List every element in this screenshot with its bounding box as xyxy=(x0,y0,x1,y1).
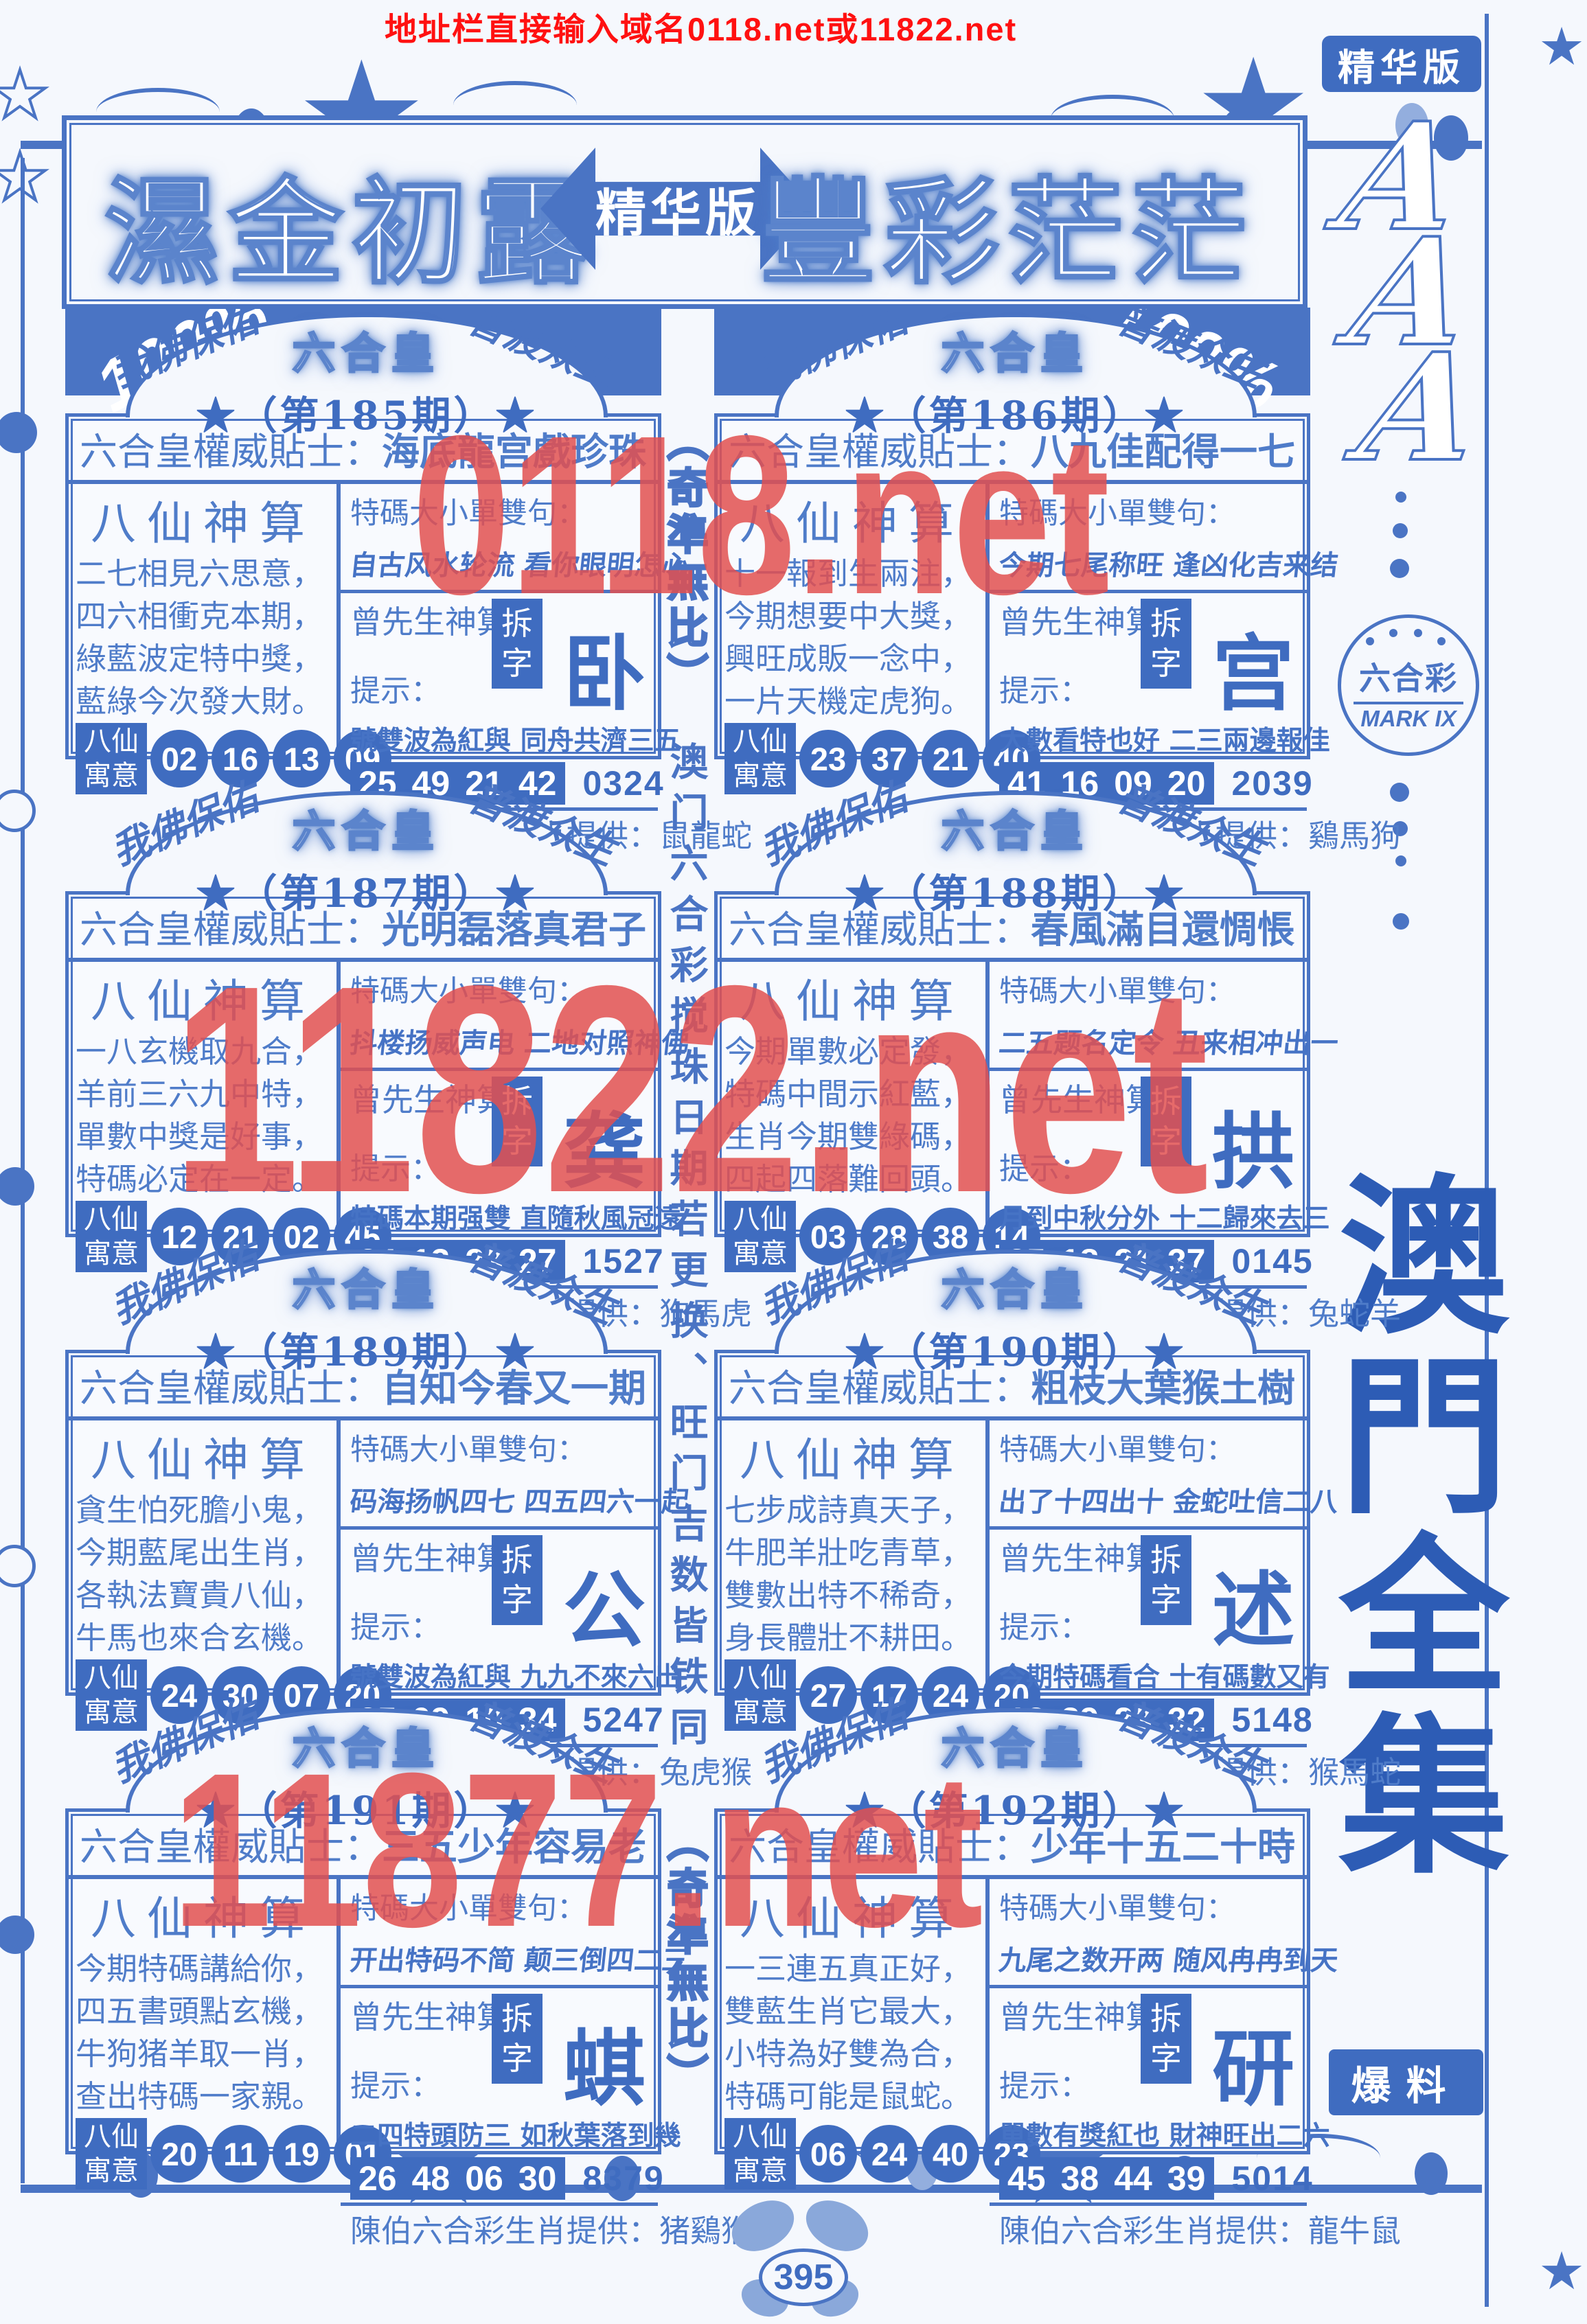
poem-line: 查出特碼一家親。 xyxy=(76,2075,331,2118)
panel-box: 六合皇權威貼士： 自知今春又一期 八仙神算 貪生怕死膽小鬼， 今期藍尾出生肖， … xyxy=(65,1350,661,1696)
yuyi-number: 20 xyxy=(150,2125,208,2183)
zodiac-label: 陳伯六合彩生肖提供： xyxy=(999,2206,1308,2251)
split-character-badge: 拆字 xyxy=(492,1077,543,1166)
split-character-badge: 拆字 xyxy=(1141,1535,1191,1625)
poem-line: 身長體壯不耕田。 xyxy=(724,1617,980,1659)
dot-decoration xyxy=(0,412,37,453)
phrase-text: 抖楼扬威声电 二地对照神佛 xyxy=(348,1021,657,1061)
poem-line: 雙藍生肖它最大， xyxy=(724,1990,980,2033)
phrase-text: 二五题名定令 丑来相冲出一 xyxy=(997,1021,1306,1061)
logo-dot xyxy=(1414,629,1422,637)
poem-column: 八仙神算 十一報到生兩注， 今期想要中大獎， 興旺成販一念中， 一片天機定虎狗。… xyxy=(718,484,990,756)
split-character: 公 xyxy=(563,1543,646,1663)
poem-column: 八仙神算 一八玄機取九合， 羊前三六九中特， 單數中獎是好事， 特碼必定在一定。… xyxy=(69,962,341,1234)
prediction-panel-189: 我佛保佑 普渡众生 六合皇 ★（第189期）★ 六合皇權威貼士： 自知今春又一期… xyxy=(65,1240,661,1696)
yuyi-badge-top: 八仙 xyxy=(84,1661,139,1695)
panel-box: 六合皇權威貼士： 三五少年容易老 八仙神算 今期特碼講給你， 四五書頭點玄機， … xyxy=(65,1808,661,2154)
split-character: 述 xyxy=(1212,1543,1294,1663)
poem-line: 興旺成販一念中， xyxy=(724,638,980,680)
panel-box: 六合皇權威貼士： 粗枝大葉猴土樹 八仙神算 七步成詩真天子， 牛肥羊壯吃青草， … xyxy=(714,1350,1310,1696)
issue-label: ★（第188期）★ xyxy=(779,862,1253,919)
chai-label: 拆字 xyxy=(492,604,543,683)
top-domain-banner: 地址栏直接输入域名0118.net或11822.net xyxy=(385,3,1017,50)
poem-line: 七步成詩真天子， xyxy=(724,1489,980,1532)
poem-line: 小特為好雙為合， xyxy=(724,2033,980,2075)
dot-decoration xyxy=(1395,855,1406,866)
dot-decoration xyxy=(1393,523,1408,538)
numbers-bar: 45 38 44 39 xyxy=(999,2157,1214,2200)
yuyi-number: 11 xyxy=(212,2125,269,2183)
issue-label: ★（第187期）★ xyxy=(130,862,604,919)
issue-label: ★（第186期）★ xyxy=(779,384,1253,441)
split-character-badge: 拆字 xyxy=(1141,1077,1191,1166)
phrase-label: 特碼大小單雙句： xyxy=(999,490,1304,532)
yuyi-badge-top: 八仙 xyxy=(84,1202,139,1236)
poem-line: 貪生怕死膽小鬼， xyxy=(76,1489,331,1532)
split-character-badge: 拆字 xyxy=(1141,599,1191,689)
dot-decoration xyxy=(1390,559,1409,578)
yuyi-number: 02 xyxy=(150,730,208,787)
yuyi-badge-top: 八仙 xyxy=(733,1661,788,1695)
master-section: 曾先生神算： 拆字 蜞 提示： 二四特頭防三 如秋葉落到幾 26 48 06 3… xyxy=(341,1988,658,2206)
poem-line: 羊前三六九中特， xyxy=(76,1073,331,1116)
pick-number: 44 xyxy=(1114,2159,1152,2198)
panel-arc-header: 我佛保佑 普渡众生 六合皇 ★（第186期）★ xyxy=(714,303,1310,413)
chai-label: 拆字 xyxy=(492,1541,543,1620)
dot-decoration xyxy=(0,1545,36,1587)
chai-label: 拆字 xyxy=(1141,1541,1191,1620)
logo-dot xyxy=(1366,637,1374,645)
poem-column: 八仙神算 貪生怕死膽小鬼， 今期藍尾出生肖， 各執法寶貴八仙， 牛馬也來合玄機。… xyxy=(69,1420,341,1692)
star-icon: ★ xyxy=(1538,21,1585,73)
center-column-middle: 澳门六合彩搅珠日期若更换、旺门吉数皆铁同 xyxy=(657,714,714,1785)
poem-line: 雙數出特不稀奇， xyxy=(724,1574,980,1617)
center-column-top: （奇準無比） xyxy=(657,412,714,707)
phrase-label: 特碼大小單雙句： xyxy=(999,1426,1304,1469)
prediction-panel-185: 我佛保佑 普渡众生 六合皇 ★（第185期）★ 六合皇權威貼士： 海底龍宫戲珍珠… xyxy=(65,303,661,759)
split-character: 宫 xyxy=(1212,607,1294,726)
poem-title: 八仙神算 xyxy=(76,1882,331,1948)
yuyi-badge-bottom: 寓意 xyxy=(733,2154,788,2188)
poem-line: 今期單數必定發， xyxy=(724,1031,980,1073)
logo-dot xyxy=(1437,637,1446,645)
phrase-label: 特碼大小單雙句： xyxy=(999,967,1304,1010)
poem-line: 生肖今期雙綠碼， xyxy=(724,1116,980,1158)
phrase-section: 特碼大小單雙句： 今期七尾称旺 逢凶化吉来结 xyxy=(990,484,1307,593)
zodiac-animals: 猴馬蛇 xyxy=(1308,1747,1401,1792)
poem-line: 牛馬也來合玄機。 xyxy=(76,1617,331,1659)
panel-arc-header: 我佛保佑 普渡众生 六合皇 ★（第187期）★ xyxy=(65,781,661,891)
poem-line: 十一報到生兩注， xyxy=(724,553,980,595)
poem-column: 八仙神算 今期特碼講給你， 四五書頭點玄機， 牛狗猪羊取一肖， 查出特碼一家親。… xyxy=(69,1879,341,2151)
prediction-panel-186: 我佛保佑 普渡众生 六合皇 ★（第186期）★ 六合皇權威貼士： 八九佳配得一七… xyxy=(714,303,1310,759)
pick-number: 26 xyxy=(358,2159,397,2198)
chai-label: 拆字 xyxy=(1141,1082,1191,1161)
dot-decoration xyxy=(1415,2152,1448,2195)
chai-label: 拆字 xyxy=(492,1999,543,2078)
yuyi-badge: 八仙 寓意 xyxy=(76,2118,147,2189)
poem-line: 今期想要中大獎， xyxy=(724,595,980,638)
star-icon: ★ xyxy=(1538,2245,1585,2297)
numbers-row: 26 48 06 30 8379 xyxy=(350,2157,655,2200)
yuyi-number: 24 xyxy=(860,2125,918,2183)
prediction-panel-187: 我佛保佑 普渡众生 六合皇 ★（第187期）★ 六合皇權威貼士： 光明磊落真君子… xyxy=(65,781,661,1237)
panel-box: 六合皇權威貼士： 海底龍宫戲珍珠 八仙神算 二七相見六思意， 四六相衝克本期， … xyxy=(65,413,661,759)
pick-number: 38 xyxy=(1061,2159,1099,2198)
star-icon: ★ xyxy=(0,62,49,128)
yuyi-badge-top: 八仙 xyxy=(84,724,139,759)
phrase-text: 今期七尾称旺 逢凶化吉来结 xyxy=(997,543,1306,583)
dot-decoration xyxy=(0,1167,34,1206)
panel-arc-header: 我佛保佑 普渡众生 六合皇 ★（第192期）★ xyxy=(714,1699,1310,1808)
four-digit-code: 8379 xyxy=(583,2159,665,2198)
phrase-text: 自古风水轮流 看你眼明怎心 xyxy=(348,543,657,583)
panel-box: 六合皇權威貼士： 春風滿目還惆悵 八仙神算 今期單數必定發， 特碼中間示紅藍， … xyxy=(714,891,1310,1237)
dot-decoration xyxy=(1390,783,1409,802)
panel-arc-header: 我佛保佑 普渡众生 六合皇 ★（第190期）★ xyxy=(714,1240,1310,1350)
poem-column: 八仙神算 一三連五真正好， 雙藍生肖它最大， 小特為好雙為合， 特碼可能是鼠蛇。… xyxy=(718,1879,990,2151)
yuyi-number: 23 xyxy=(799,730,857,787)
split-character: 龚 xyxy=(563,1085,646,1204)
logo-dot xyxy=(1389,629,1397,637)
pick-number: 06 xyxy=(465,2159,503,2198)
phrase-label: 特碼大小單雙句： xyxy=(999,1885,1304,1927)
phrase-label: 特碼大小單雙句： xyxy=(350,490,655,532)
yuyi-number: 06 xyxy=(799,2125,857,2183)
poem-line: 牛肥羊壯吃青草， xyxy=(724,1532,980,1574)
poem-title: 八仙神算 xyxy=(724,1882,980,1948)
four-digit-code: 5014 xyxy=(1232,2159,1314,2198)
poem-title: 八仙神算 xyxy=(76,1423,331,1489)
yuyi-number: 13 xyxy=(273,730,330,787)
phrase-section: 特碼大小單雙句： 码海扬帆四七 四五四六一起 xyxy=(341,1420,658,1530)
yuyi-number: 21 xyxy=(922,730,979,787)
panel-box: 六合皇權威貼士： 八九佳配得一七 八仙神算 十一報到生兩注， 今期想要中大獎， … xyxy=(714,413,1310,759)
poem-line: 今期特碼講給你， xyxy=(76,1948,331,1990)
poem-title: 八仙神算 xyxy=(76,487,331,553)
center-column-bottom: （奇準無比） xyxy=(657,1813,714,2108)
yuyi-number-row: 八仙 寓意 20 11 19 01 xyxy=(76,2118,331,2189)
split-character: 拱 xyxy=(1212,1085,1294,1204)
split-character-badge: 拆字 xyxy=(492,1994,543,2084)
poem-column: 八仙神算 七步成詩真天子， 牛肥羊壯吃青草， 雙數出特不稀奇， 身長體壯不耕田。… xyxy=(718,1420,990,1692)
poem-line: 牛狗猪羊取一肖， xyxy=(76,2033,331,2075)
poem-title: 八仙神算 xyxy=(76,965,331,1031)
phrase-text: 出了十四出十 金蛇吐信二八 xyxy=(997,1480,1306,1519)
prediction-panel-191: 我佛保佑 普渡众生 六合皇 ★（第191期）★ 六合皇權威貼士： 三五少年容易老… xyxy=(65,1699,661,2154)
butterfly-decoration: 395 xyxy=(724,2200,876,2324)
banner-left-title: 濕金初露 xyxy=(104,139,599,306)
zodiac-section: 陳伯六合彩生肖提供： 猪鷄猴 xyxy=(341,2206,658,2251)
zodiac-section: 陳伯六合彩生肖提供： 龍牛鼠 xyxy=(990,2206,1307,2251)
dot-decoration xyxy=(1393,913,1409,930)
prediction-panel-192: 我佛保佑 普渡众生 六合皇 ★（第192期）★ 六合皇權威貼士： 少年十五二十時… xyxy=(714,1699,1310,2154)
pick-number: 45 xyxy=(1007,2159,1046,2198)
poem-line: 藍綠今次發大財。 xyxy=(76,680,331,723)
poem-line: 今期藍尾出生肖， xyxy=(76,1532,331,1574)
yuyi-badge-top: 八仙 xyxy=(84,2119,139,2154)
poem-line: 特碼可能是鼠蛇。 xyxy=(724,2075,980,2118)
poem-line: 單數中獎是好事， xyxy=(76,1116,331,1158)
poem-title: 八仙神算 xyxy=(724,965,980,1031)
logo-mark: MARK IX xyxy=(1354,702,1463,732)
poem-line: 四六相衝克本期， xyxy=(76,595,331,638)
yuyi-number: 19 xyxy=(273,2125,330,2183)
prediction-panel-188: 我佛保佑 普渡众生 六合皇 ★（第188期）★ 六合皇權威貼士： 春風滿目還惆悵… xyxy=(714,781,1310,1237)
panel-arc-header: 我佛保佑 普渡众生 六合皇 ★（第188期）★ xyxy=(714,781,1310,891)
pick-number: 48 xyxy=(412,2159,450,2198)
phrase-label: 特碼大小單雙句： xyxy=(350,1885,655,1927)
chai-label: 拆字 xyxy=(1141,604,1191,683)
title-banner: 濕金初露 精华版 豐彩茫茫 xyxy=(62,115,1308,309)
sidebar-bottom-badge: 爆料 xyxy=(1329,2049,1483,2115)
dot-decoration xyxy=(0,790,36,832)
numbers-row: 45 38 44 39 5014 xyxy=(999,2157,1304,2200)
star-icon: ★ xyxy=(0,144,49,210)
poem-line: 特碼必定在一定。 xyxy=(76,1158,331,1201)
phrase-text: 开出特码不简 颠三倒四二三 xyxy=(348,1938,657,1978)
split-character: 研 xyxy=(1212,2002,1294,2121)
zodiac-animals: 龍牛鼠 xyxy=(1308,2206,1401,2251)
phrase-label: 特碼大小單雙句： xyxy=(350,1426,655,1469)
poem-column: 八仙神算 二七相見六思意， 四六相衝克本期， 綠藍波定特中獎， 藍綠今次發大財。… xyxy=(69,484,341,756)
issue-label: ★（第185期）★ xyxy=(130,384,604,441)
phrase-section: 特碼大小單雙句： 抖楼扬威声电 二地对照神佛 xyxy=(341,962,658,1071)
phrase-section: 特碼大小單雙句： 出了十四出十 金蛇吐信二八 xyxy=(990,1420,1307,1530)
panel-box: 六合皇權威貼士： 光明磊落真君子 八仙神算 一八玄機取九合， 羊前三六九中特， … xyxy=(65,891,661,1237)
panel-arc-header: 我佛保佑 普渡众生 六合皇 ★（第185期）★ xyxy=(65,303,661,413)
issue-label: ★（第191期）★ xyxy=(130,1780,604,1836)
split-character-badge: 拆字 xyxy=(492,1535,543,1625)
prediction-panel-190: 我佛保佑 普渡众生 六合皇 ★（第190期）★ 六合皇權威貼士： 粗枝大葉猴土樹… xyxy=(714,1240,1310,1696)
poem-line: 四起四落難回頭。 xyxy=(724,1158,980,1201)
yuyi-badge-top: 八仙 xyxy=(733,724,788,759)
panel-arc-header: 我佛保佑 普渡众生 六合皇 ★（第189期）★ xyxy=(65,1240,661,1350)
poem-line: 綠藍波定特中獎， xyxy=(76,638,331,680)
yuyi-badge-top: 八仙 xyxy=(733,2119,788,2154)
poem-title: 八仙神算 xyxy=(724,487,980,553)
panel-arc-header: 我佛保佑 普渡众生 六合皇 ★（第191期）★ xyxy=(65,1699,661,1808)
split-character: 蜞 xyxy=(563,2002,646,2121)
numbers-bar: 26 48 06 30 xyxy=(350,2157,565,2200)
phrase-section: 特碼大小單雙句： 二五题名定令 丑来相冲出一 xyxy=(990,962,1307,1071)
edition-label: 精华版 xyxy=(595,172,760,246)
panel-box: 六合皇權威貼士： 少年十五二十時 八仙神算 一三連五真正好， 雙藍生肖它最大， … xyxy=(714,1808,1310,2154)
poem-line: 二七相見六思意， xyxy=(76,553,331,595)
poem-line: 一八玄機取九合， xyxy=(76,1031,331,1073)
lottery-tip-sheet: 地址栏直接输入域名0118.net或11822.net ★ ★ ★ ★ ★ 濕金… xyxy=(0,0,1587,2324)
logo-title: 六合彩 xyxy=(1341,654,1476,699)
phrase-text: 九尾之数开两 随风冉冉到天 xyxy=(997,1938,1306,1978)
poem-line: 特碼中間示紅藍， xyxy=(724,1073,980,1116)
poem-line: 一三連五真正好， xyxy=(724,1948,980,1990)
issue-label: ★（第192期）★ xyxy=(779,1780,1253,1836)
sidebar-edition-badge: 精华版 xyxy=(1322,36,1481,92)
banner-right-title: 豐彩茫茫 xyxy=(760,139,1255,306)
master-section: 曾先生神算： 拆字 研 提示： 單數有獎紅也 財神旺出二六 45 38 44 3… xyxy=(990,1988,1307,2206)
yuyi-number-row: 八仙 寓意 06 24 40 23 xyxy=(724,2118,980,2189)
split-character-badge: 拆字 xyxy=(1141,1994,1191,2084)
issue-label: ★（第190期）★ xyxy=(779,1321,1253,1377)
zodiac-animals: 兔蛇羊 xyxy=(1308,1289,1401,1333)
dot-decoration xyxy=(1395,492,1406,503)
poem-line: 各執法寶貴八仙， xyxy=(76,1574,331,1617)
pick-number: 30 xyxy=(518,2159,557,2198)
yuyi-number: 40 xyxy=(922,2125,979,2183)
poem-column: 八仙神算 今期單數必定發， 特碼中間示紅藍， 生肖今期雙綠碼， 四起四落難回頭。… xyxy=(718,962,990,1234)
issue-label: ★（第189期）★ xyxy=(130,1321,604,1377)
split-character-badge: 拆字 xyxy=(492,599,543,689)
chai-label: 拆字 xyxy=(1141,1999,1191,2078)
poem-title: 八仙神算 xyxy=(724,1423,980,1489)
phrase-label: 特碼大小單雙句： xyxy=(350,967,655,1010)
phrase-section: 特碼大小單雙句： 开出特码不简 颠三倒四二三 xyxy=(341,1879,658,1988)
yuyi-badge-top: 八仙 xyxy=(733,1202,788,1236)
pick-number: 39 xyxy=(1167,2159,1206,2198)
poem-line: 四五書頭點玄機， xyxy=(76,1990,331,2033)
mark-six-logo: 六合彩 MARK IX xyxy=(1338,614,1479,756)
phrase-text: 码海扬帆四七 四五四六一起 xyxy=(348,1480,657,1519)
chai-label: 拆字 xyxy=(492,1082,543,1161)
page-number: 395 xyxy=(759,2248,848,2306)
yuyi-badge-bottom: 寓意 xyxy=(84,2154,139,2188)
zodiac-label: 陳伯六合彩生肖提供： xyxy=(350,2206,659,2251)
phrase-section: 特碼大小單雙句： 九尾之数开两 随风冉冉到天 xyxy=(990,1879,1307,1988)
yuyi-badge: 八仙 寓意 xyxy=(724,2118,796,2189)
split-character: 卧 xyxy=(563,607,646,726)
poem-line: 一片天機定虎狗。 xyxy=(724,680,980,723)
zodiac-animals: 鷄馬狗 xyxy=(1308,811,1401,855)
phrase-section: 特碼大小單雙句： 自古风水轮流 看你眼明怎心 xyxy=(341,484,658,593)
dot-decoration xyxy=(0,1915,34,1954)
